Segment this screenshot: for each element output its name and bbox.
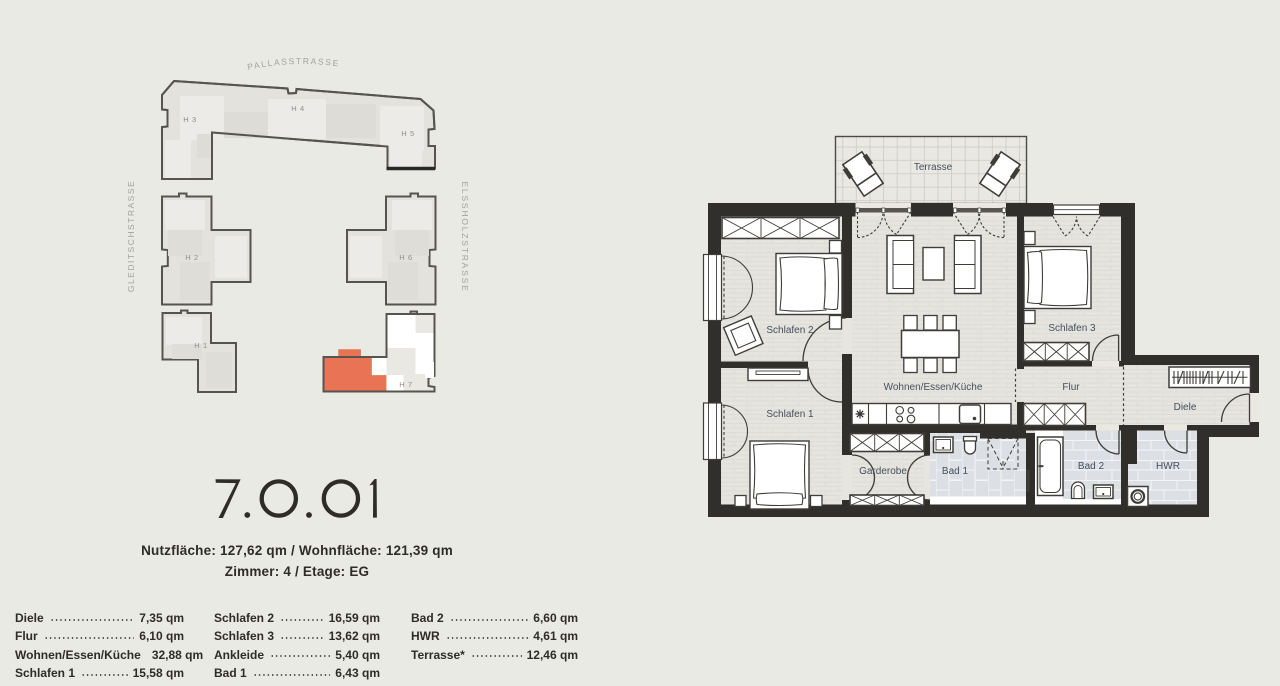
svg-text:Flur: Flur (1062, 382, 1080, 393)
svg-text:Schlafen 3: Schlafen 3 (1048, 323, 1096, 334)
svg-text:H 4: H 4 (291, 104, 304, 113)
svg-text:Schlafen 2: Schlafen 2 (766, 325, 814, 336)
svg-text:H 6: H 6 (399, 253, 412, 262)
svg-text:GLEDITSCHSTRASSE: GLEDITSCHSTRASSE (126, 180, 136, 292)
svg-text:H 7: H 7 (399, 380, 412, 389)
svg-text:H 1: H 1 (194, 341, 207, 350)
svg-text:H 5: H 5 (401, 129, 414, 138)
svg-text:HWR: HWR (1156, 461, 1180, 472)
svg-text:Wohnen/Essen/Küche: Wohnen/Essen/Küche (884, 382, 983, 393)
svg-text:Bad 1: Bad 1 (942, 466, 969, 477)
svg-text:H 2: H 2 (185, 253, 198, 262)
svg-text:H 3: H 3 (183, 115, 196, 124)
svg-text:Diele: Diele (1174, 402, 1197, 413)
svg-text:Garderobe: Garderobe (859, 466, 907, 477)
svg-text:Terrasse: Terrasse (914, 162, 953, 173)
svg-text:Schlafen 1: Schlafen 1 (766, 409, 814, 420)
svg-text:PALLASSTRASSE: PALLASSTRASSE (246, 56, 340, 72)
svg-text:Bad 2: Bad 2 (1078, 461, 1105, 472)
svg-text:ELSSHOLZSTRASSE: ELSSHOLZSTRASSE (460, 181, 470, 292)
